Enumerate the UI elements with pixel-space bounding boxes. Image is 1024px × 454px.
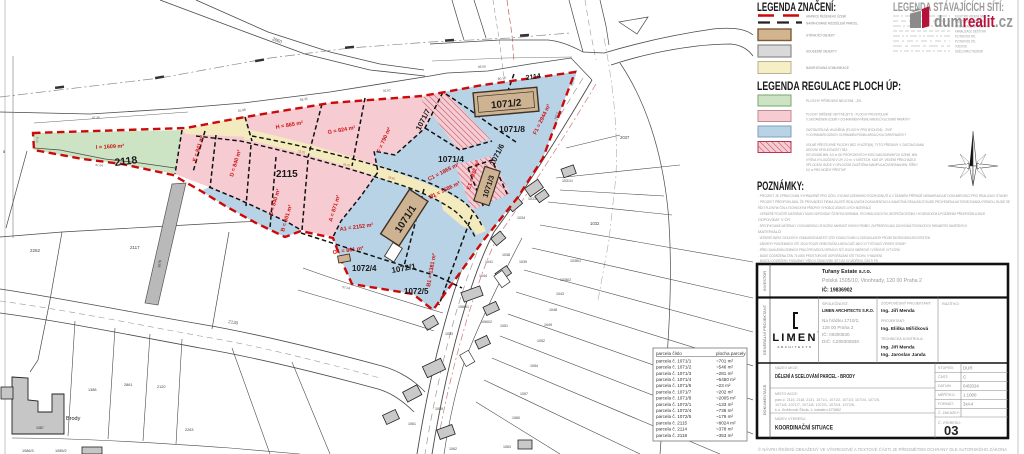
svg-text:C: C (963, 375, 966, 380)
svg-text:1039: 1039 (519, 260, 527, 264)
svg-text:LIMEN: LIMEN (772, 332, 817, 344)
svg-text:- SPECIFIKOVANÉ MATERIÁLY V D: - SPECIFIKOVANÉ MATERIÁLY V DOKUMENTACI … (758, 223, 967, 228)
svg-text:~133 m²: ~133 m² (716, 402, 733, 407)
svg-text:SOUSEDNÍ OBJEKTY: SOUSEDNÍ OBJEKTY (806, 49, 837, 54)
svg-text:HRANICE ŘEŠENÉHO ÚZEMÍ: HRANICE ŘEŠENÉHO ÚZEMÍ (806, 14, 847, 19)
svg-text:1051: 1051 (500, 324, 508, 328)
svg-text:1053: 1053 (445, 332, 453, 336)
svg-text:1060: 1060 (512, 416, 520, 420)
svg-text:1034: 1034 (517, 216, 525, 220)
svg-text:- PŘED ZAHÁJENÍM ZEMNÍCH PRAC: - PŘED ZAHÁJENÍM ZEMNÍCH PRACÍ PROVEDOU … (758, 247, 901, 252)
svg-text:GENERÁLNÍ PROJEKTANT: GENERÁLNÍ PROJEKTANT (762, 304, 767, 355)
svg-text:ARCHITECTS: ARCHITECTS (777, 345, 812, 349)
svg-text:DUR: DUR (963, 366, 973, 371)
svg-text:1031/1: 1031/1 (562, 179, 573, 183)
svg-text:- BUDE DODRŽENA ČSN 73 6005 P: - BUDE DODRŽENA ČSN 73 6005 PROSTOROVÉ U… (758, 253, 883, 258)
svg-text:1072/5: 1072/5 (404, 287, 429, 296)
svg-text:3xA4: 3xA4 (963, 402, 974, 407)
svg-text:~8024 m²: ~8024 m² (716, 420, 736, 425)
svg-text:INVESTOR: INVESTOR (762, 271, 767, 291)
svg-text:8: 8 (3, 150, 5, 154)
svg-text:parcela č. 2115: parcela č. 2115 (656, 420, 688, 425)
svg-text:DOKUMENTACE: DOKUMENTACE (762, 384, 767, 415)
svg-text:parcela č. 1071/3: parcela č. 1071/3 (656, 371, 692, 376)
svg-text:1086/3: 1086/3 (22, 449, 34, 453)
svg-text:FORMÁT:: FORMÁT: (938, 402, 954, 406)
svg-text:1388: 1388 (88, 388, 96, 392)
svg-text:MATERIÁLŮ: MATERIÁLŮ (758, 229, 781, 234)
svg-text:2263: 2263 (185, 428, 193, 432)
svg-text:ODPOVÍDAT V ČR: ODPOVÍDAT V ČR (758, 217, 790, 222)
svg-text:ČÁST:: ČÁST: (938, 374, 948, 379)
svg-text:1072/4: 1072/4 (352, 264, 377, 273)
svg-text:2117: 2117 (130, 245, 140, 250)
svg-text:1059: 1059 (435, 407, 443, 411)
svg-text:parcela č. 1071/6: parcela č. 1071/6 (656, 383, 692, 388)
svg-text:© NÁVRH ŘEŠENÍ OBSAŽENÝ VE VÝK: © NÁVRH ŘEŠENÍ OBSAŽENÝ VE VÝKRESOVÉ A T… (758, 447, 1007, 452)
svg-text:04/2024: 04/2024 (963, 384, 979, 389)
svg-text:DĚLENÍ A SCELOVÁNÍ PARCEL - BR: DĚLENÍ A SCELOVÁNÍ PARCEL - BRODY (775, 372, 855, 380)
svg-text:~2005 m²: ~2005 m² (716, 396, 736, 401)
svg-text:plocha parcely: plocha parcely (716, 351, 746, 356)
svg-text:PLYNOVOD STL: PLYNOVOD STL (955, 40, 976, 44)
svg-text:1085/2: 1085/2 (55, 449, 67, 453)
svg-text:parcela č. 1071/8: parcela č. 1071/8 (656, 396, 692, 401)
svg-text:- PROJEKT JE ZPRACOVÁN VYHRAZ: - PROJEKT JE ZPRACOVÁN VYHRAZENĚ PRO ÚČE… (758, 193, 1008, 198)
svg-text:parcela č. 1071/7: parcela č. 1071/7 (656, 389, 692, 394)
svg-text:IČ: 09300830: IČ: 09300830 (822, 331, 850, 337)
svg-text:DATUM:: DATUM: (938, 384, 952, 388)
svg-text:Ing. Jiří Menda: Ing. Jiří Menda (881, 345, 915, 351)
svg-text:parcela č. 1071/1: parcela č. 1071/1 (656, 358, 692, 363)
svg-text:MÍSTO AKCE:: MÍSTO AKCE: (775, 392, 798, 396)
svg-text:1087: 1087 (36, 426, 44, 430)
svg-text:SITUOVÁNÍ MIN. 6,0 m OD PROPOJ: SITUOVÁNÍ MIN. 6,0 m OD PROPOJENÝCH HODO… (806, 152, 918, 157)
svg-text:2115: 2115 (276, 169, 298, 180)
svg-text:~5450 m²: ~5450 m² (716, 377, 736, 382)
svg-text:1043: 1043 (556, 292, 564, 296)
svg-text:1060/2: 1060/2 (481, 320, 492, 324)
svg-text:2037: 2037 (620, 135, 630, 140)
svg-text:~736 m²: ~736 m² (716, 408, 733, 413)
svg-text:NAVRHOVANÁ KOMUNIKACE: NAVRHOVANÁ KOMUNIKACE (806, 65, 849, 70)
svg-text:1048: 1048 (549, 308, 557, 312)
svg-text:1071/6, 1071/7, 1071/8, 1072/1: 1071/6, 1071/7, 1071/8, 1072/1, 1072/4, … (775, 403, 855, 407)
svg-text:2861: 2861 (124, 383, 132, 387)
svg-text:1:1000: 1:1000 (963, 393, 977, 398)
svg-text:Ing. Jiří Menda: Ing. Jiří Menda (881, 308, 915, 314)
svg-text:parc.č. 2115, 2118, 2131, 1071: parc.č. 2115, 2118, 2131, 1071/1, 1071/2… (775, 398, 880, 402)
svg-text:parcela č. 1072/5: parcela č. 1072/5 (656, 414, 692, 419)
svg-text:dumrealit.cz: dumrealit.cz (934, 12, 1013, 31)
svg-text:SDĚLOVACÍ VEDENÍ: SDĚLOVACÍ VEDENÍ (955, 49, 983, 54)
svg-text:~546 m²: ~546 m² (716, 365, 733, 370)
svg-text:1044: 1044 (479, 274, 487, 278)
svg-text:Na hrázku 1710/2,: Na hrázku 1710/2, (822, 318, 860, 323)
svg-text:1071/8: 1071/8 (499, 124, 525, 134)
svg-text:1054: 1054 (530, 364, 538, 368)
svg-text:1049: 1049 (544, 323, 552, 327)
svg-text:PLOCHY PŘÍRODNÍ NELESNÍ - ZN: PLOCHY PŘÍRODNÍ NELESNÍ - ZN (806, 98, 861, 103)
svg-text:1062: 1062 (449, 447, 457, 451)
svg-text:- ZÁKRESY PODZEMNÍCH SÍTÍ JSO: - ZÁKRESY PODZEMNÍCH SÍTÍ JSOU POUZE ORI… (758, 241, 906, 246)
svg-text:- BUDOU DODRŽENY PODMÍNKY VŠE: - BUDOU DODRŽENY PODMÍNKY VŠECH STANOVIS… (758, 258, 878, 263)
svg-text:ÚROVNI SPOLEČNOSTI TBZ:: ÚROVNI SPOLEČNOSTI TBZ: (806, 147, 848, 152)
svg-text:~23 m²: ~23 m² (716, 383, 731, 388)
svg-text:V ZASTAVĚNÉM ÚZEMÍ V OCHRANNÉM: V ZASTAVĚNÉM ÚZEMÍ V OCHRANNÉM PÁSMU ARE… (806, 117, 910, 122)
svg-text:~353 m²: ~353 m² (716, 433, 733, 438)
svg-text:V OCHRANNÉM ÚZEMÍ V OCHRANNÉM: V OCHRANNÉM ÚZEMÍ V OCHRANNÉM PÁSMU AREÁ… (806, 132, 906, 137)
svg-text:VÝŠKA VYLOUČENÍ V ÚP, 2,0 m, V: VÝŠKA VYLOUČENÍ V ÚP, 2,0 m, V MÍSTECH, … (806, 157, 916, 162)
svg-text:1038: 1038 (502, 253, 510, 257)
svg-text:Ing. Jaroslav Janda: Ing. Jaroslav Janda (881, 352, 926, 358)
svg-text:PLOCHY SMÍŠENÉ OBYTNÉ (BYT) -: PLOCHY SMÍŠENÉ OBYTNÉ (BYT) - PLOCHY PRO… (806, 112, 888, 117)
svg-text:Ing. Eliška Miřičková: Ing. Eliška Miřičková (881, 326, 929, 332)
svg-text:32.62: 32.62 (383, 88, 392, 93)
svg-text:- VEŠKERÉ ZMĚNY ZVOLENÝCH STA: - VEŠKERÉ ZMĚNY ZVOLENÝCH STANDARDŮ MUSÍ… (758, 235, 930, 240)
svg-text:ZODPOVĚDNÝ PROJEKTANT:: ZODPOVĚDNÝ PROJEKTANT: (881, 301, 931, 306)
svg-text:VOLNÉ PŘESTUPNÉ PLOCHY BEZ VYU: VOLNÉ PŘESTUPNÉ PLOCHY BEZ VYUŽITÍ(M), T… (806, 142, 925, 147)
svg-text:1071/4: 1071/4 (438, 154, 464, 164)
svg-text:~202 m²: ~202 m² (716, 389, 733, 394)
svg-text:parcela č. 1072/1: parcela č. 1072/1 (656, 402, 692, 407)
svg-text:PROJEKTANT:: PROJEKTANT: (881, 319, 905, 323)
svg-text:~281 m²: ~281 m² (716, 371, 733, 376)
svg-text:17.5: 17.5 (35, 136, 40, 143)
svg-text:LEGENDA ZNAČENÍ:: LEGENDA ZNAČENÍ: (757, 1, 836, 14)
svg-text:~378 m²: ~378 m² (716, 427, 733, 432)
svg-text:03: 03 (944, 423, 958, 438)
svg-text:ZASTAVITELNÁ VKLÍNĚNÁ (PLOCHY: ZASTAVITELNÁ VKLÍNĚNÁ (PLOCHY PRO BYDLEN… (806, 127, 893, 132)
svg-text:Č. ZAKÁZKY:: Č. ZAKÁZKY: (938, 410, 960, 415)
svg-text:1061: 1061 (408, 422, 416, 426)
svg-text:97.36: 97.36 (92, 115, 100, 120)
svg-text:parcela č. 1072/4: parcela č. 1072/4 (656, 408, 692, 413)
svg-text:parcela č. 1071/2: parcela č. 1071/2 (656, 365, 692, 370)
svg-text:LEGENDA REGULACE PLOCH ÚP:: LEGENDA REGULACE PLOCH ÚP: (757, 80, 901, 93)
svg-text:parcela č. 2118: parcela č. 2118 (656, 433, 688, 438)
svg-text:1036/2: 1036/2 (560, 278, 571, 282)
svg-text:NÁZEV VÝKRESU:: NÁZEV VÝKRESU: (775, 417, 806, 421)
svg-text:STUPEŇ:: STUPEŇ: (938, 366, 954, 370)
svg-text:parcela číslo: parcela číslo (656, 351, 682, 356)
svg-text:NÁZEV AKCE:: NÁZEV AKCE: (775, 366, 799, 370)
svg-text:37.04: 37.04 (95, 163, 104, 168)
svg-text:1063: 1063 (503, 445, 511, 449)
svg-text:parcela č. 1071/4: parcela č. 1071/4 (656, 377, 692, 382)
svg-text:5,0 m PRO MOŽNÝ PŘESTUP: 5,0 m PRO MOŽNÝ PŘESTUP (806, 167, 846, 172)
svg-text:1041: 1041 (485, 260, 493, 264)
svg-text:1060/1: 1060/1 (458, 305, 469, 309)
svg-text:128 00 Praha 2: 128 00 Praha 2 (822, 325, 854, 330)
svg-text:VODOVOD: VODOVOD (955, 45, 967, 49)
svg-text:POZNÁMKY:: POZNÁMKY: (757, 180, 804, 193)
svg-text:- VEŠKERÉ POUŽITÉ MATERIÁLY M: - VEŠKERÉ POUŽITÉ MATERIÁLY MUSÍ ODPOVÍD… (758, 211, 986, 216)
svg-text:1052: 1052 (537, 339, 545, 343)
svg-text:ŘÍDIT PLATNÝMI ČSN A TECHNICKÝ: ŘÍDIT PLATNÝMI ČSN A TECHNICKÝMI PŘEDPIS… (758, 205, 871, 210)
svg-text:RAZÍTKO:: RAZÍTKO: (942, 302, 960, 306)
svg-text:OPLOCENÍ, BUDE V OPLOCENÍ ZAJI: OPLOCENÍ, BUDE V OPLOCENÍ ZAJIŠTĚNA MANI… (806, 162, 918, 167)
svg-text:parcela č. 2114: parcela č. 2114 (656, 427, 688, 432)
svg-text:2262: 2262 (30, 248, 41, 253)
svg-text:- PROJEKT PŘEDPOKLÁDÁ, ŽE PRO: - PROJEKT PŘEDPOKLÁDÁ, ŽE PROVÁDĚCÍ FIRM… (758, 199, 1010, 204)
svg-text:SPOLEČNOST:: SPOLEČNOST: (822, 301, 849, 306)
svg-text:2120: 2120 (157, 385, 165, 389)
svg-text:~179 m²: ~179 m² (716, 414, 733, 419)
svg-text:LIMEN ARCHITECTS S.R.O.: LIMEN ARCHITECTS S.R.O. (822, 308, 874, 314)
svg-text:TECHNICKÁ KONTROLA:: TECHNICKÁ KONTROLA: (881, 337, 924, 341)
svg-text:1032: 1032 (590, 221, 600, 226)
svg-text:Polská 1505/10, Vinohrady, 120: Polská 1505/10, Vinohrady, 120 00 Praha … (822, 278, 922, 284)
svg-text:MĚŘÍTKO:: MĚŘÍTKO: (938, 392, 955, 397)
svg-text:1057: 1057 (520, 392, 528, 396)
svg-text:1036/1: 1036/1 (570, 259, 581, 263)
svg-text:PLYNOVOD NTL: PLYNOVOD NTL (955, 35, 976, 39)
svg-text:k.ú. Kněžmost Škola, č. katast: k.ú. Kněžmost Škola, č. katastru 673862 (775, 407, 841, 412)
svg-text:96.50: 96.50 (478, 65, 486, 69)
svg-text:~701 m²: ~701 m² (716, 358, 733, 363)
svg-text:IČ: 19836902: IČ: 19836902 (822, 287, 853, 294)
svg-text:Brody: Brody (66, 416, 81, 422)
svg-text:NAVRHOVANÉ ROZDĚLENÍ PARCEL: NAVRHOVANÉ ROZDĚLENÍ PARCEL (806, 21, 859, 26)
svg-text:KOORDINAČNÍ SITUACE: KOORDINAČNÍ SITUACE (775, 424, 833, 432)
svg-text:Tuřany Estate s.r.o.: Tuřany Estate s.r.o. (822, 269, 872, 275)
svg-text:STÁVAJÍCÍ OBJEKT: STÁVAJÍCÍ OBJEKT (806, 33, 835, 38)
svg-text:DIČ: CZ09300830: DIČ: CZ09300830 (822, 338, 859, 344)
